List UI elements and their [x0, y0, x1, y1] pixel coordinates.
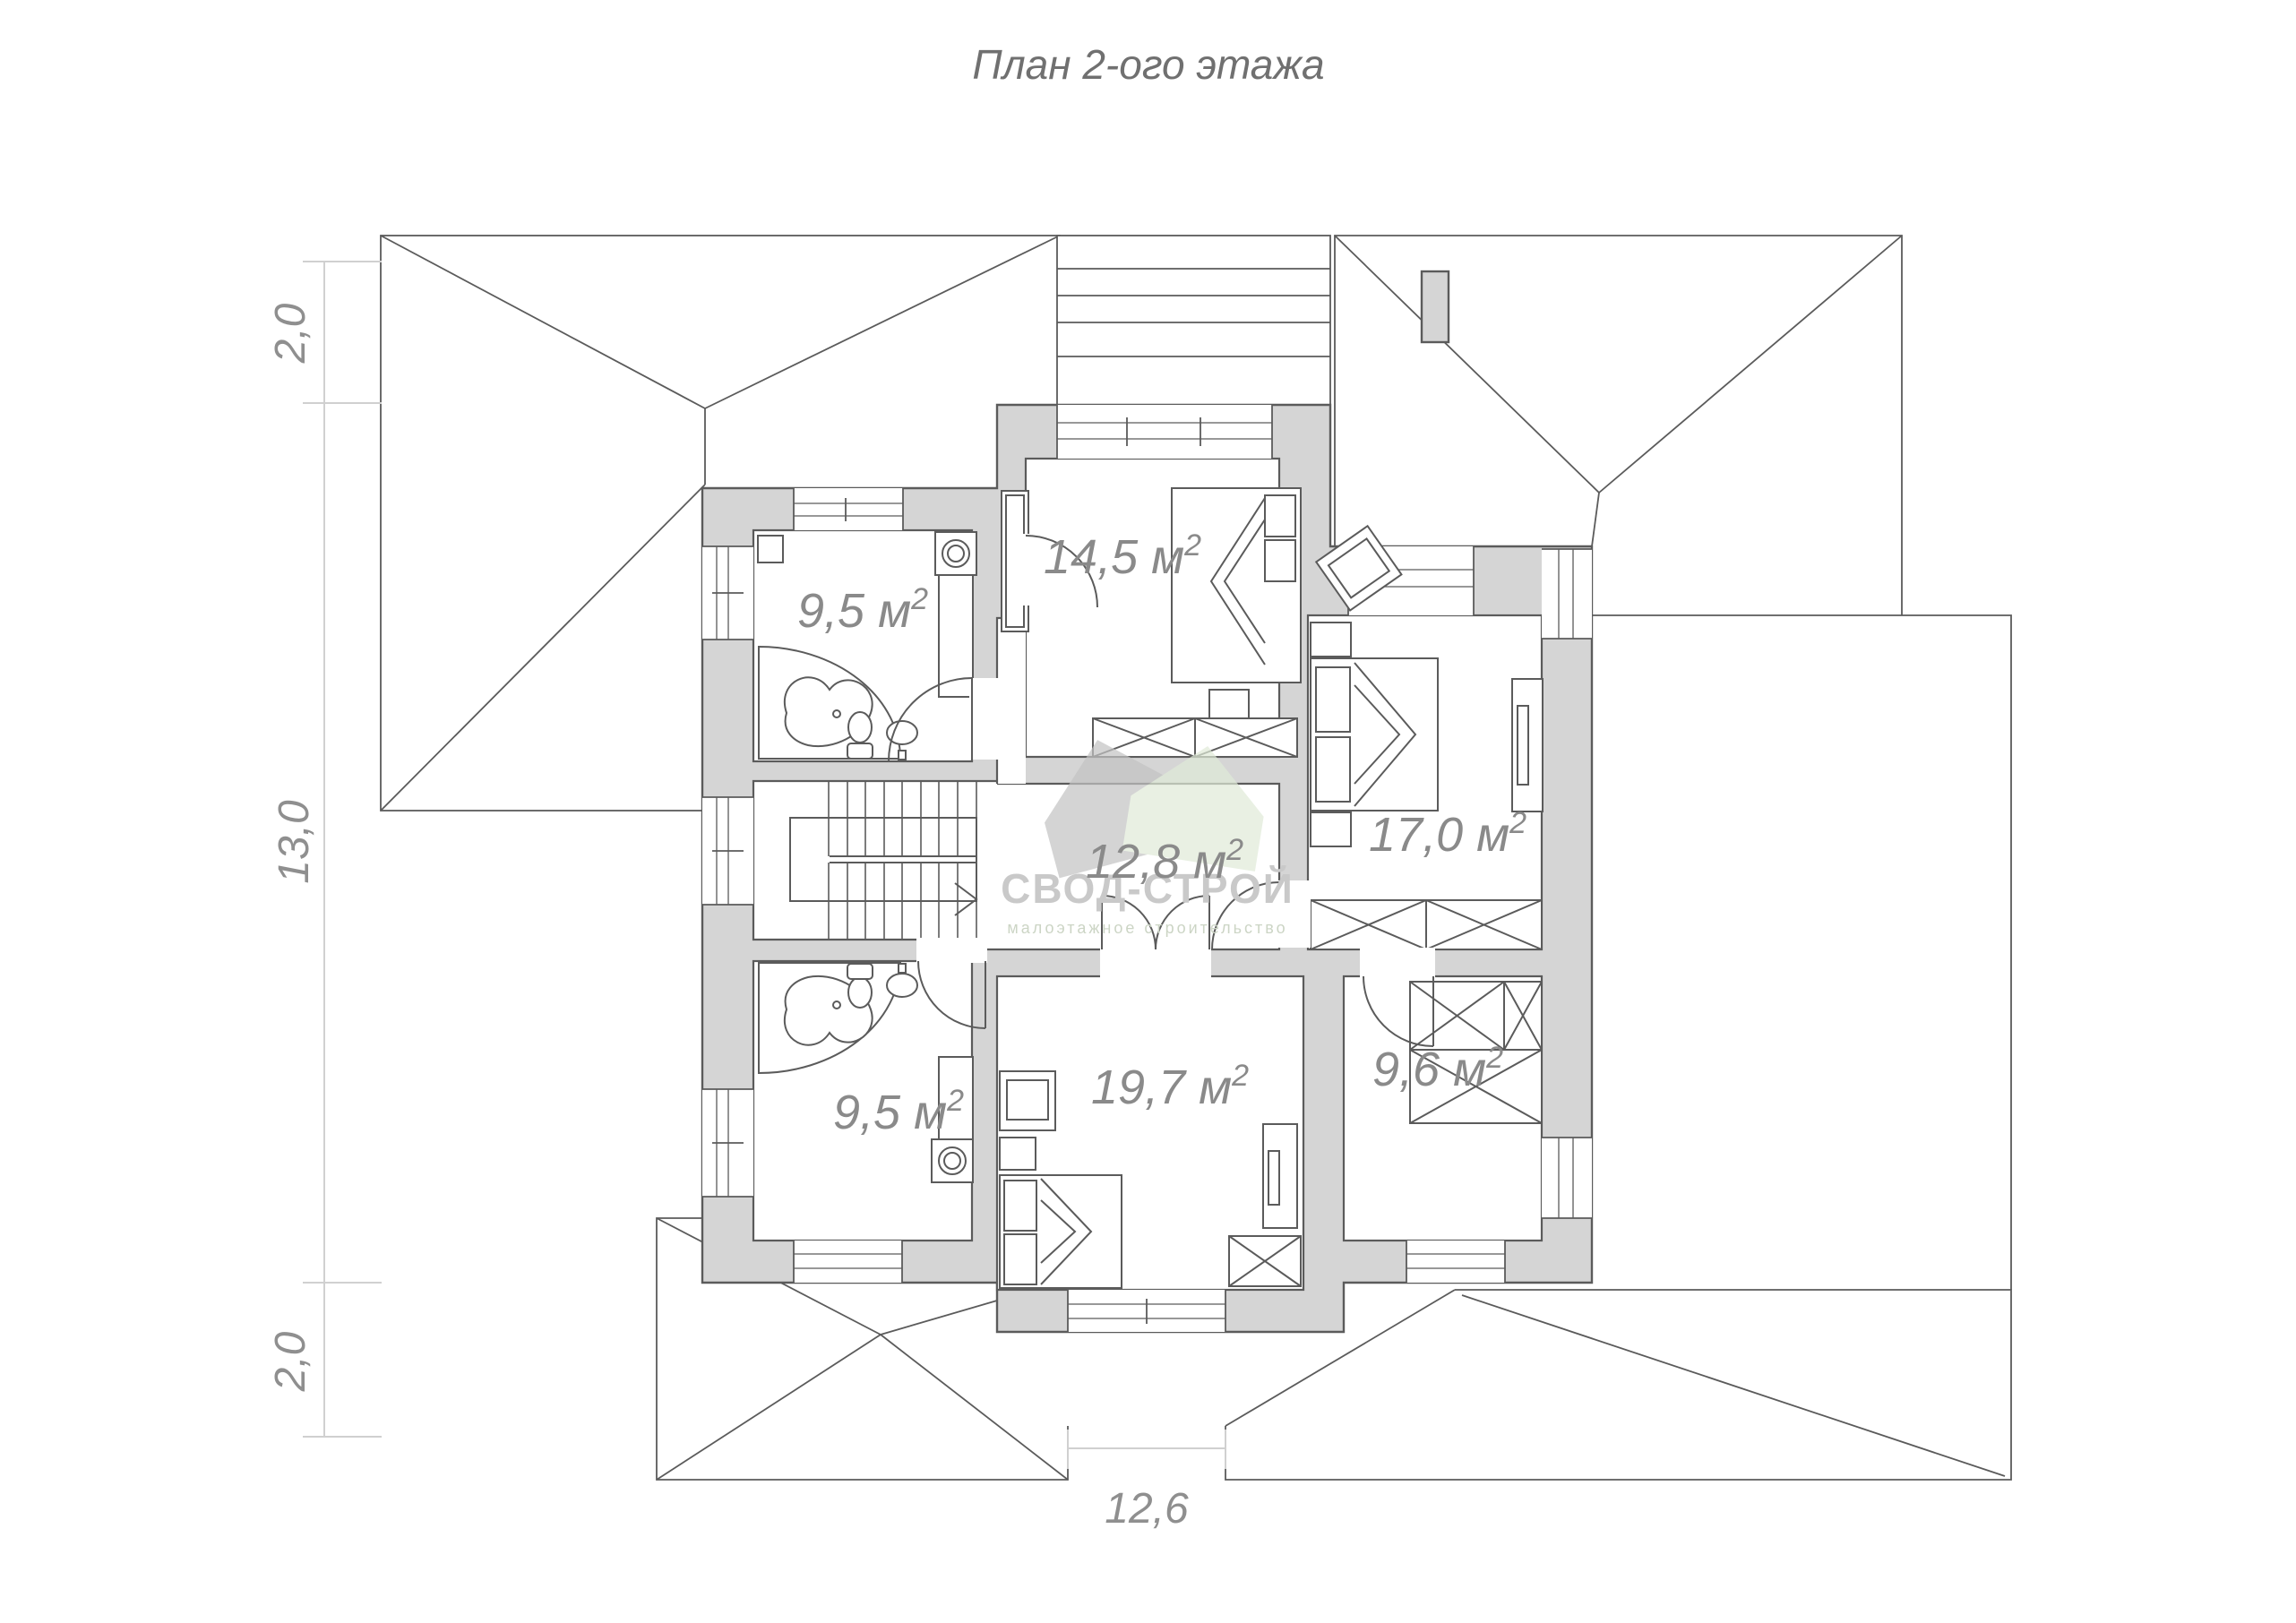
nightstand	[1000, 1138, 1036, 1170]
dimension-label: 12,6	[1105, 1485, 1189, 1533]
pillow	[1316, 667, 1350, 732]
nightstand	[1311, 812, 1351, 846]
plan-title: План 2-ого этажа	[972, 41, 1324, 88]
window	[702, 1089, 753, 1197]
wardrobe-x	[1311, 900, 1542, 949]
floor-plan-page: СВОД-СТРОЙ малоэтажное строительство 2,0…	[0, 0, 2296, 1623]
toilet-icon	[848, 712, 872, 743]
pillow	[1265, 495, 1295, 537]
window	[1068, 1290, 1225, 1332]
pillow	[1004, 1234, 1036, 1284]
chimney	[1422, 271, 1449, 342]
pillow	[1265, 540, 1295, 581]
window	[702, 546, 753, 640]
window	[1542, 1138, 1592, 1218]
pillow	[1316, 737, 1350, 802]
roof-right	[1574, 615, 2011, 1290]
room-area-label: 14,5 м2	[1044, 528, 1201, 584]
dimension-label: 13,0	[271, 800, 318, 884]
window	[1057, 405, 1272, 459]
room-area-label: 9,6 м2	[1372, 1041, 1503, 1096]
window	[794, 1241, 902, 1283]
washing-machine-icon	[932, 1139, 973, 1182]
room-area-label: 19,7 м2	[1091, 1059, 1249, 1114]
window	[702, 797, 753, 905]
dimension-label: 2,0	[267, 303, 314, 364]
room-area-label: 12,8 м2	[1086, 833, 1243, 889]
stool	[1209, 690, 1249, 720]
shelf	[758, 536, 783, 562]
wardrobe-x	[1229, 1236, 1301, 1286]
watermark-tagline: малоэтажное строительство	[1007, 919, 1287, 937]
toilet-icon	[848, 977, 872, 1008]
corridor	[997, 618, 1026, 784]
washing-machine-icon	[935, 532, 976, 575]
terrace	[1057, 236, 1330, 405]
dimension-label: 2,0	[267, 1331, 314, 1392]
nightstand	[1311, 623, 1351, 657]
room-area-label: 17,0 м2	[1369, 806, 1526, 862]
sink-icon	[887, 974, 917, 997]
window	[1406, 1241, 1505, 1283]
window	[1542, 549, 1592, 639]
floor-plan-canvas: СВОД-СТРОЙ малоэтажное строительство 2,0…	[0, 0, 2296, 1623]
room-area-label: 9,5 м2	[797, 582, 928, 638]
wardrobe-x	[1093, 718, 1297, 757]
window	[794, 488, 903, 530]
room-area-label: 9,5 м2	[833, 1084, 964, 1139]
pillow	[1004, 1181, 1036, 1231]
